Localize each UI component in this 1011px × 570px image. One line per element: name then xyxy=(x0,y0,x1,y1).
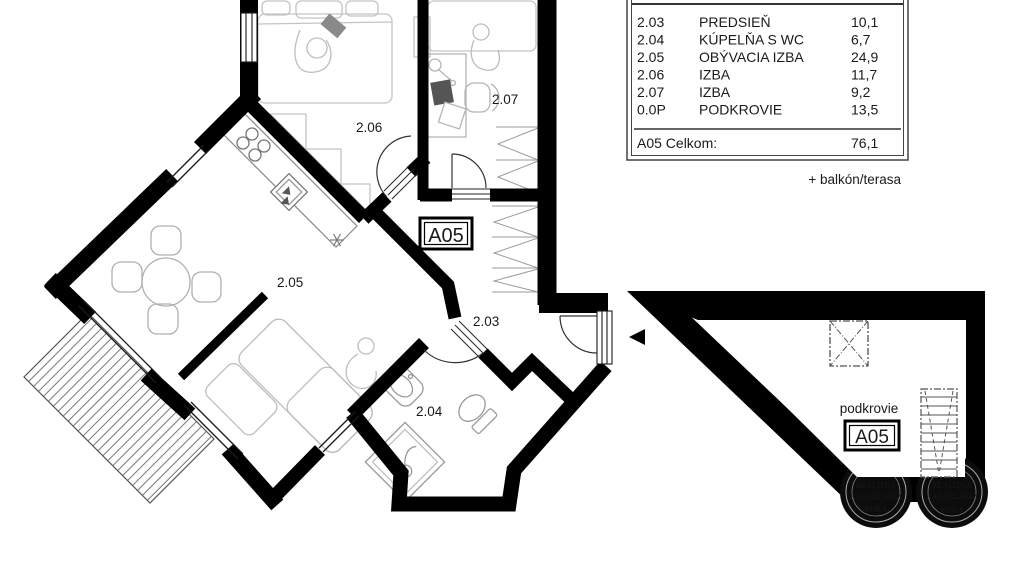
legend-row-no: 2.04 xyxy=(637,32,664,48)
legend-row-no: 2.03 xyxy=(637,14,664,30)
legend-row-no: 0.0P xyxy=(637,102,666,118)
watermark-text: ROKA xyxy=(941,505,964,514)
floor-plan-canvas: REALITNÁ KANCELÁRIA ROKA REALITNÁ KANCEL… xyxy=(0,0,1011,570)
person-on-bed-icon xyxy=(295,13,346,72)
desk-2-07 xyxy=(426,54,499,137)
legend-row-area: 9,2 xyxy=(851,84,871,100)
entry-door-frame xyxy=(597,311,612,364)
legend-row-name: IZBA xyxy=(699,84,731,100)
main-unit-label: A05 xyxy=(428,225,464,247)
legend-note: + balkón/terasa xyxy=(808,172,901,187)
room-label-2-03: 2.03 xyxy=(473,314,499,329)
legend-row-area: 6,7 xyxy=(851,32,871,48)
legend-row-no: 2.05 xyxy=(637,49,664,65)
person-on-sofa-icon xyxy=(346,338,376,388)
dining-table-set xyxy=(112,226,221,334)
legend-table: 2.03 PREDSIEŇ 10,1 2.04 KÚPELŇA S WC 6,7… xyxy=(627,0,908,187)
toilet-icon xyxy=(454,390,499,435)
person-at-desk-icon xyxy=(471,24,499,70)
legend-row-name: IZBA xyxy=(699,67,731,83)
watermark-text: ROKA xyxy=(865,505,888,514)
wardrobe-2-07 xyxy=(496,127,538,193)
room-label-2-04: 2.04 xyxy=(416,404,443,419)
room-label-2-05: 2.05 xyxy=(277,275,303,290)
watermark-text: REALITNÁ xyxy=(932,480,972,490)
legend-row-no: 2.07 xyxy=(637,84,664,100)
attic-caption: podkrovie xyxy=(840,401,899,416)
legend-row-area: 10,1 xyxy=(851,14,878,30)
legend-total-area: 76,1 xyxy=(851,135,878,151)
sofa xyxy=(202,315,376,489)
wardrobe-hall xyxy=(492,206,538,292)
legend-row-no: 2.06 xyxy=(637,67,664,83)
room-label-2-06: 2.06 xyxy=(356,120,382,135)
watermark-text: KANCELÁRIA xyxy=(850,491,902,501)
room-label-2-07: 2.07 xyxy=(492,92,518,107)
legend-row-name: KÚPELŇA S WC xyxy=(699,32,804,48)
attic-unit-label: A05 xyxy=(855,427,889,448)
bed-2-07 xyxy=(428,1,536,51)
legend-row-area: 24,9 xyxy=(851,49,878,65)
legend-row-name: PODKROVIE xyxy=(699,102,782,118)
watermark-text: KANCELÁRIA xyxy=(926,491,978,501)
legend-total-label: A05 Celkom: xyxy=(637,135,717,151)
entrance-arrow-icon xyxy=(629,329,645,345)
floor-plan-page: REALITNÁ KANCELÁRIA ROKA REALITNÁ KANCEL… xyxy=(0,0,1011,570)
attic-unit-badge: A05 xyxy=(845,421,899,450)
main-unit-badge: A05 xyxy=(420,218,472,249)
legend-row-name: PREDSIEŇ xyxy=(699,14,771,30)
watermark-text: REALITNÁ xyxy=(856,480,896,490)
bed-2-06 xyxy=(258,1,430,103)
window-bedroom-wall xyxy=(241,13,257,62)
legend-row-name: OBÝVACIA IZBA xyxy=(699,49,804,65)
legend-row-area: 13,5 xyxy=(851,102,878,118)
attic-plan: REALITNÁ KANCELÁRIA ROKA REALITNÁ KANCEL… xyxy=(627,291,988,528)
legend-row-area: 11,7 xyxy=(851,67,877,83)
kitchen-counter xyxy=(220,110,357,247)
